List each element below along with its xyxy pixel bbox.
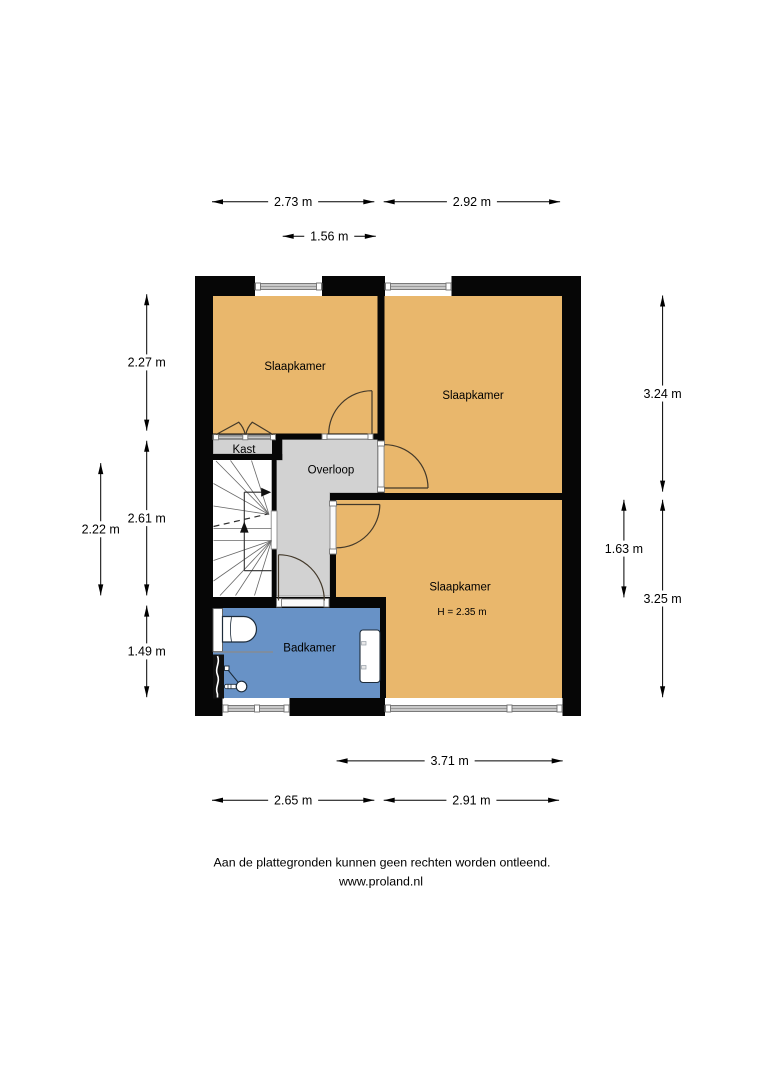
svg-text:1.63 m: 1.63 m bbox=[605, 542, 643, 556]
svg-text:2.91 m: 2.91 m bbox=[452, 794, 490, 808]
svg-text:www.proland.nl: www.proland.nl bbox=[338, 875, 423, 889]
svg-text:3.71 m: 3.71 m bbox=[431, 754, 469, 768]
svg-text:1.56 m: 1.56 m bbox=[310, 230, 348, 244]
svg-text:1.49 m: 1.49 m bbox=[128, 645, 166, 659]
svg-text:Badkamer: Badkamer bbox=[283, 642, 336, 654]
svg-text:Slaapkamer: Slaapkamer bbox=[442, 390, 504, 402]
svg-text:2.22 m: 2.22 m bbox=[82, 523, 120, 537]
svg-text:Kast: Kast bbox=[232, 444, 256, 456]
svg-text:2.92 m: 2.92 m bbox=[453, 195, 491, 209]
svg-text:2.27 m: 2.27 m bbox=[128, 356, 166, 370]
svg-text:3.25 m: 3.25 m bbox=[643, 592, 681, 606]
svg-text:2.65 m: 2.65 m bbox=[274, 794, 312, 808]
svg-text:2.73 m: 2.73 m bbox=[274, 195, 312, 209]
svg-text:3.24 m: 3.24 m bbox=[643, 387, 681, 401]
svg-text:Aan de plattegronden kunnen ge: Aan de plattegronden kunnen geen rechten… bbox=[214, 856, 551, 870]
svg-text:2.61 m: 2.61 m bbox=[128, 511, 166, 525]
svg-text:Slaapkamer: Slaapkamer bbox=[429, 582, 491, 594]
svg-text:Slaapkamer: Slaapkamer bbox=[264, 361, 326, 373]
svg-text:Overloop: Overloop bbox=[308, 464, 355, 476]
svg-text:H = 2.35 m: H = 2.35 m bbox=[437, 607, 486, 618]
